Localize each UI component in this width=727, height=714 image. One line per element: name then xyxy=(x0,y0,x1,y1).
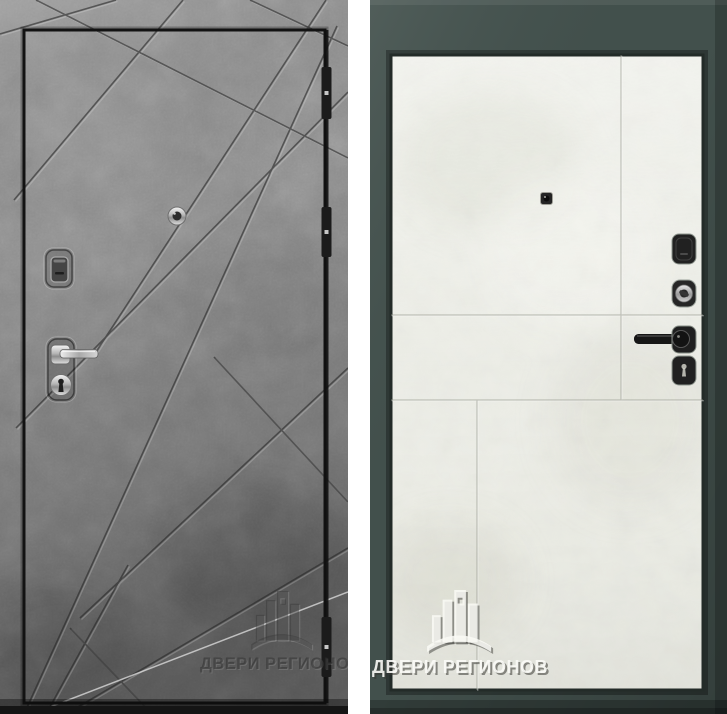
peephole-front xyxy=(168,207,186,225)
door-panel xyxy=(380,52,710,693)
peephole-back xyxy=(541,193,553,205)
floor-shadow-left xyxy=(0,699,348,706)
night-latch-knob xyxy=(672,280,696,307)
keyhole-cover-back xyxy=(672,356,696,385)
door-back-view: ДВЕРИ РЕГИОНОВ ДВЕРИ РЕГИОНОВ xyxy=(370,0,727,714)
brand-text-right: ДВЕРИ РЕГИОНОВ xyxy=(372,657,548,677)
door-product-image: ДВЕРИ РЕГИОНОВ ДВЕРИ РЕГИОНОВ xyxy=(0,0,727,714)
door-back-photo: ДВЕРИ РЕГИОНОВ ДВЕРИ РЕГИОНОВ xyxy=(370,0,727,714)
hinge-middle xyxy=(322,207,332,257)
brand-text-left: ДВЕРИ РЕГИОНОВ xyxy=(200,655,348,673)
lock-cover-back xyxy=(672,234,696,264)
keyhole-cover-front xyxy=(44,248,74,289)
hinge-top xyxy=(322,67,332,119)
door-front-view: ДВЕРИ РЕГИОНОВ ДВЕРИ РЕГИОНОВ xyxy=(0,0,348,714)
cylinder-lock-front xyxy=(51,375,72,396)
floor-strip-left xyxy=(0,706,348,714)
photo-divider xyxy=(348,0,370,714)
door-front-photo: ДВЕРИ РЕГИОНОВ ДВЕРИ РЕГИОНОВ xyxy=(0,0,348,714)
